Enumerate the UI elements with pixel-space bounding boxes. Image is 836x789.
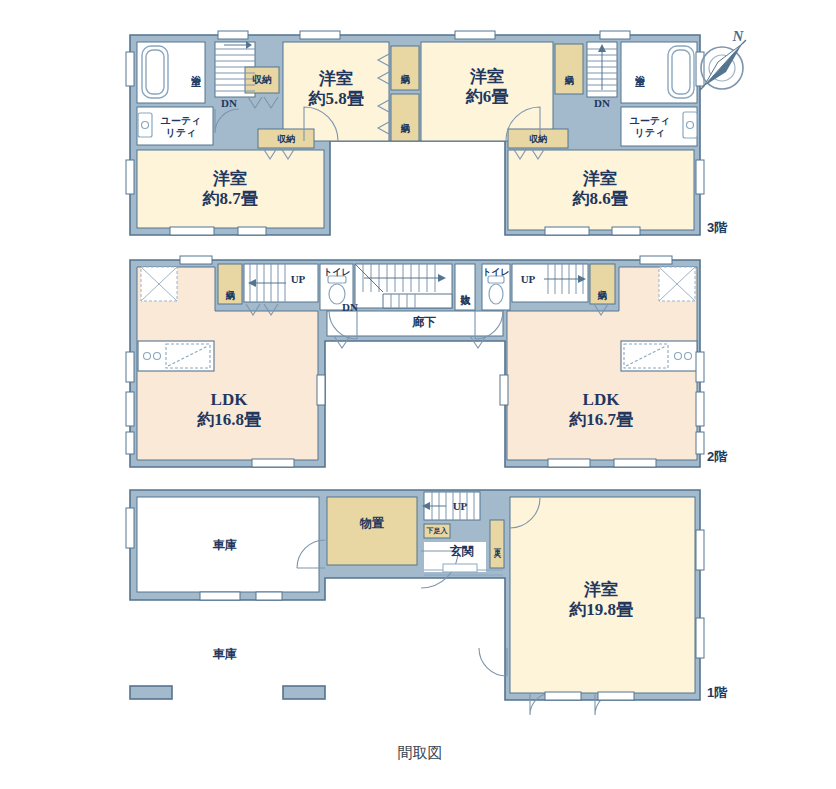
room-19-8-label: 洋室 約19.8畳 [569,580,633,619]
room-8-6-label: 洋室 約8.6畳 [572,169,627,208]
carport-pillar-left [130,686,172,699]
room-5-8-label: 洋室 約5.8畳 [308,69,363,108]
hallway-label: 廊下 [412,316,436,330]
compass-north-label: N [733,28,744,45]
utility-left-label: ユーティリティ [158,115,204,138]
garage-lower-label: 車庫 [213,648,237,662]
closet-label-2f-left: 収納 [225,283,235,285]
room-8-7-label: 洋室 約8.7畳 [202,169,257,208]
closet-label-a: 収納 [252,74,272,86]
toilet-left-label: トイレ [323,267,351,277]
storeroom-room [327,497,417,565]
floor-plan: 浴室 ユーティリティ DN 収納 洋室 約5.8畳 収納 収納 洋室 約6畳 収… [0,0,836,789]
floor2-tag: 2階 [707,450,727,465]
skylight-hatch-right [659,267,695,301]
plan-caption: 間取図 [398,744,443,761]
bath-left-label: 浴室 [190,67,202,69]
shoe-box-right-label: 下足入 [493,543,501,546]
bathroom-left [137,42,205,103]
storeroom-label: 物置 [360,517,384,531]
floor1-tag: 1階 [707,686,727,701]
dn-label-3f-left: DN [221,97,237,110]
up-label-2f-right: UP [521,273,536,286]
toilet-right-icon [488,276,504,304]
floor3-tag: 3階 [707,221,727,236]
carport-pillar-right [283,686,325,699]
garage-upper-label: 車庫 [213,539,237,553]
dn-label-2f: DN [342,301,358,314]
toilet-right-label: トイレ [482,267,510,277]
void-label: 吹抜 [459,286,471,288]
dn-label-3f-right: DN [594,97,610,110]
closet-label-e: 収納 [277,134,295,144]
floor-plan-drawing [0,0,836,789]
kitchen-left-icon [138,341,214,371]
skylight-hatch-left [141,267,177,301]
closet-label-c: 収納 [400,116,410,118]
ldk-right-label: LDK 約16.7畳 [569,390,633,429]
closet-label-f: 収納 [529,134,547,144]
room-6-label: 洋室 約6畳 [466,67,509,106]
utility-right-label: ユーティリティ [627,115,673,138]
shoe-box-left-label: 下足入 [427,527,448,535]
ldk-left-label: LDK 約16.8畳 [197,390,261,429]
utility-sink-right-icon [683,112,697,138]
kitchen-right-icon [621,341,697,371]
closet-label-d: 収納 [564,68,574,70]
bath-right-label: 浴室 [634,67,646,69]
closet-label-b: 収納 [400,67,410,69]
compass-icon [700,40,746,90]
up-label-2f-left: UP [291,273,306,286]
closet-label-2f-right: 収納 [597,283,607,285]
utility-sink-left-icon [138,113,152,137]
up-label-1f: UP [453,500,468,513]
floor2-rooms [137,264,697,460]
entrance-label: 玄関 [450,545,474,559]
